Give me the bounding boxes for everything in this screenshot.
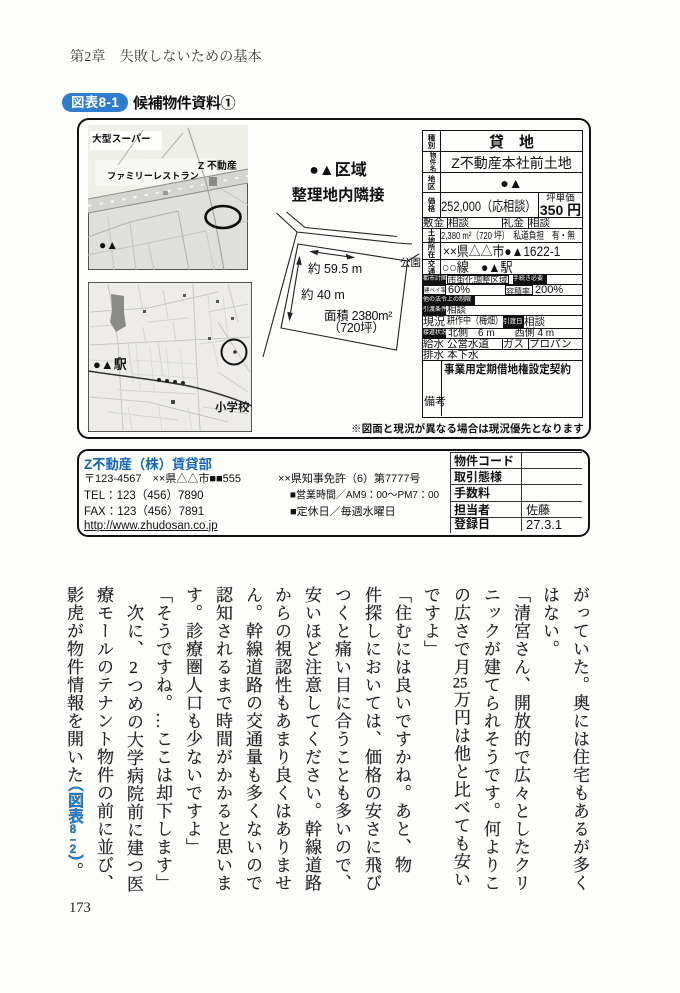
svg-text:●▲駅: ●▲駅 [93,357,127,372]
svg-text:大型スーパー: 大型スーパー [92,132,151,145]
svg-text:ファミリーレストラン: ファミリーレストラン [107,171,199,181]
svg-text:●▲: ●▲ [99,238,118,252]
svg-text:Z 不動産: Z 不動産 [198,159,237,172]
svg-text:小学校: 小学校 [215,400,250,414]
